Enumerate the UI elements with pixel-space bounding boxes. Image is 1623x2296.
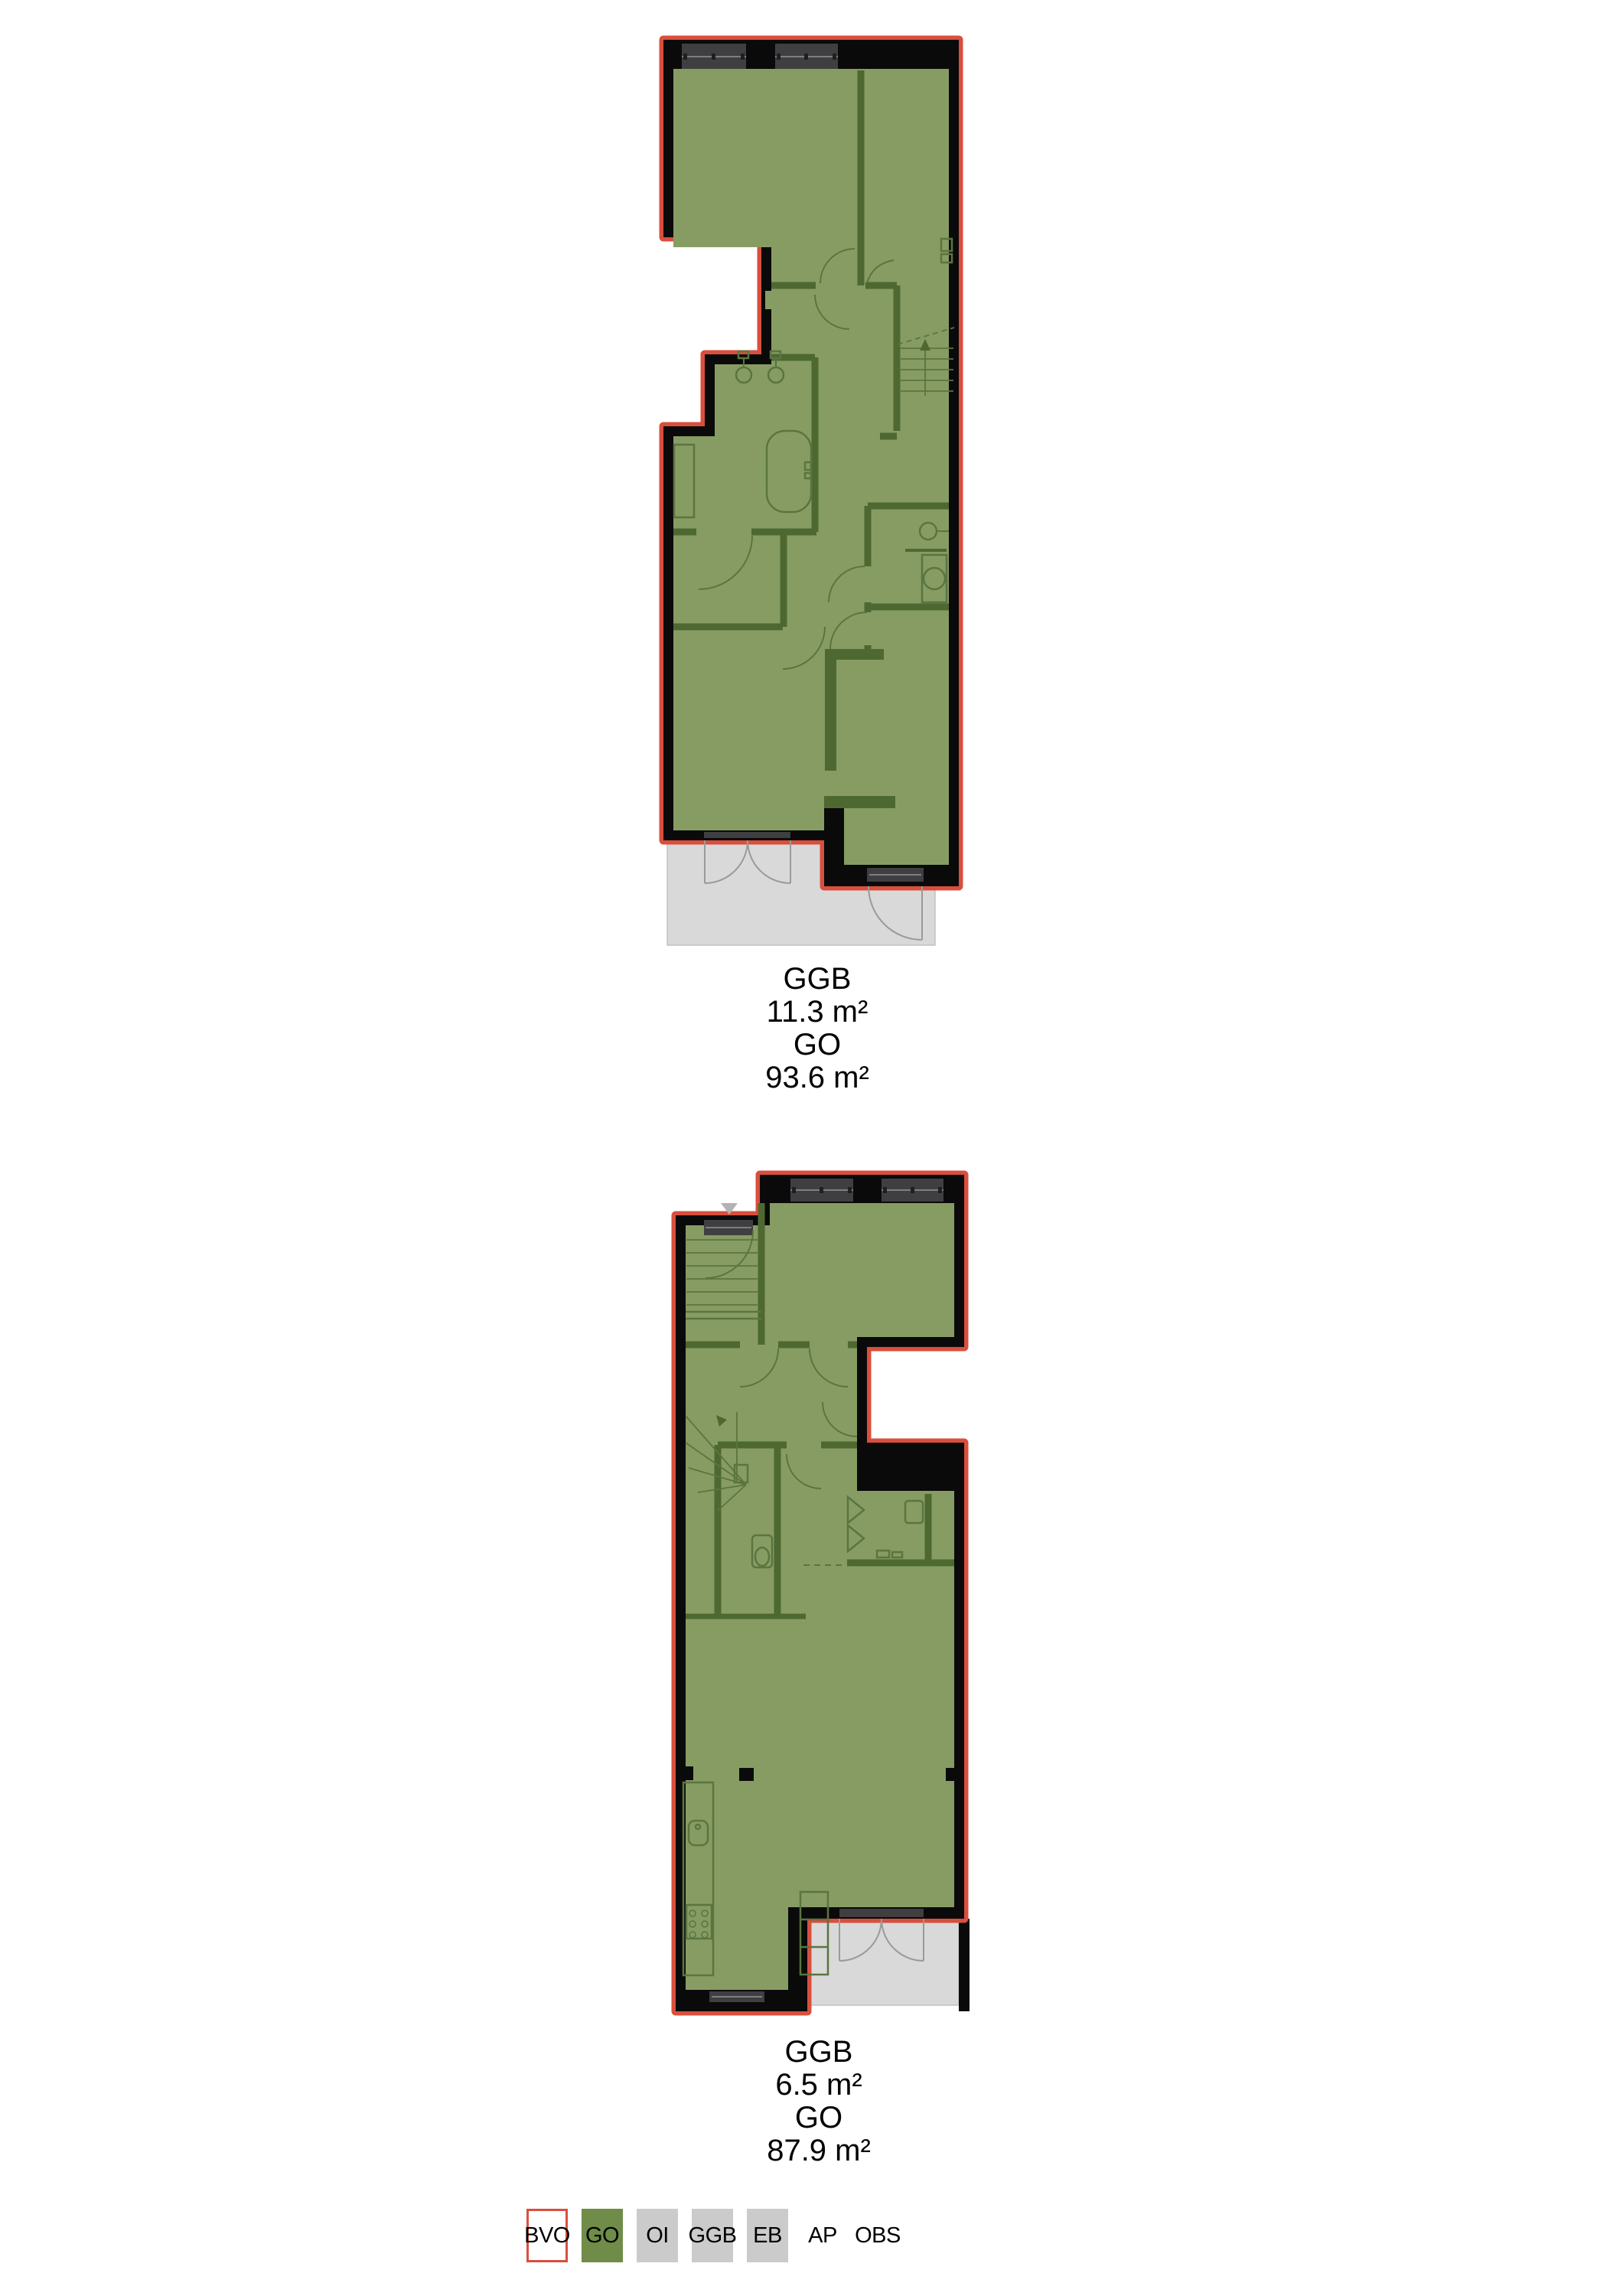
terrace-lower <box>807 1919 970 2011</box>
ggb-label: GGB <box>767 2036 871 2069</box>
legend-item-obs: OBS <box>857 2209 898 2262</box>
floorplan-sheet: GGB 11.3 m² GO 93.6 m² <box>0 0 1623 2296</box>
thick-wall-upper <box>825 649 836 771</box>
legend: BVO GO OI GGB EB AP OBS <box>526 2209 898 2262</box>
floor-plan-upper-drawing <box>650 31 972 957</box>
go-label: GO <box>767 2102 871 2135</box>
legend-item-eb: EB <box>747 2209 788 2262</box>
legend-item-bvo: BVO <box>526 2209 568 2262</box>
floor-area-lower <box>686 1203 954 1990</box>
legend-item-oi: OI <box>637 2209 678 2262</box>
ggb-label: GGB <box>765 963 869 996</box>
legend-item-ap: AP <box>802 2209 843 2262</box>
area-label-lower: GGB 6.5 m² GO 87.9 m² <box>767 2036 871 2167</box>
ggb-value: 11.3 m² <box>765 996 869 1029</box>
legend-item-ggb: GGB <box>692 2209 733 2262</box>
legend-item-go: GO <box>582 2209 623 2262</box>
door-recess <box>765 291 774 309</box>
go-value: 93.6 m² <box>765 1062 869 1094</box>
area-label-upper: GGB 11.3 m² GO 93.6 m² <box>765 963 869 1094</box>
floor-plan-lower-drawing <box>654 1167 979 2028</box>
go-value: 87.9 m² <box>767 2135 871 2167</box>
go-label: GO <box>765 1029 869 1062</box>
ggb-value: 6.5 m² <box>767 2069 871 2102</box>
